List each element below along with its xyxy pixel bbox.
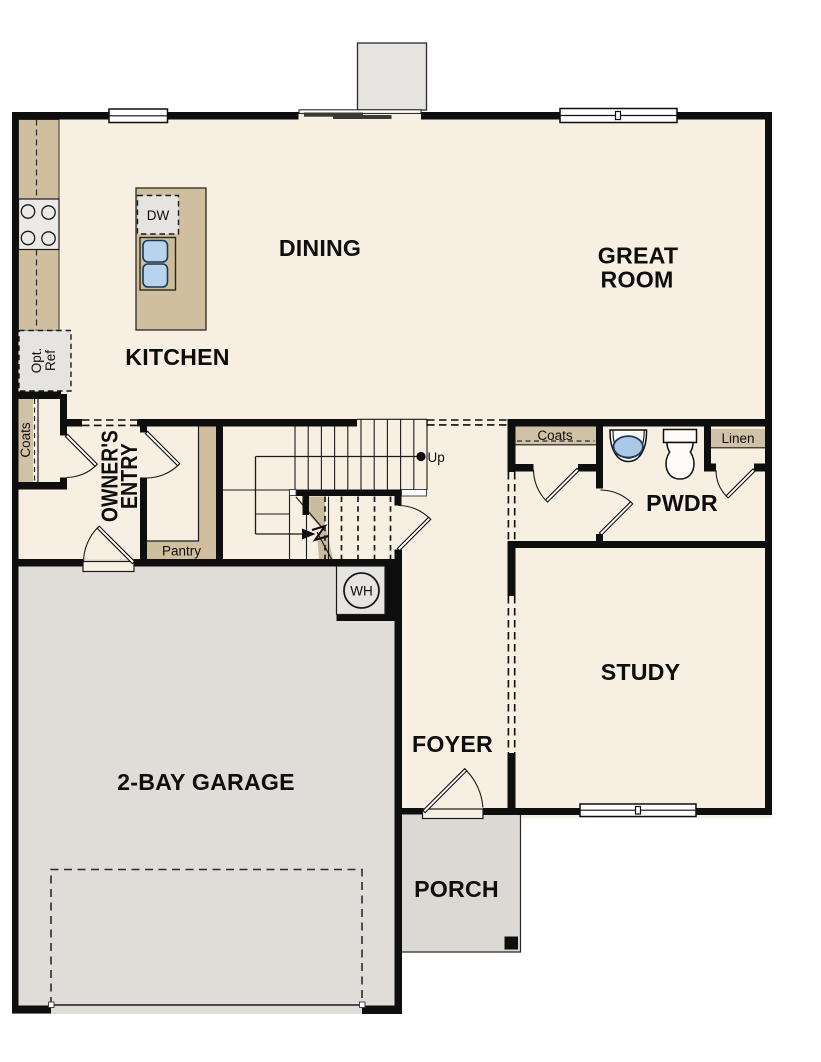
svg-text:Linen: Linen [721, 431, 754, 446]
svg-text:PORCH: PORCH [414, 876, 499, 902]
svg-text:Pantry: Pantry [162, 544, 201, 559]
svg-text:Opt.Ref: Opt.Ref [29, 348, 58, 374]
svg-text:Coats: Coats [18, 422, 33, 458]
svg-text:DW: DW [147, 208, 170, 223]
svg-text:DINING: DINING [279, 235, 361, 261]
svg-text:STUDY: STUDY [601, 659, 681, 685]
svg-text:Coats: Coats [537, 428, 573, 443]
svg-text:GREAT: GREAT [598, 243, 678, 269]
svg-text:KITCHEN: KITCHEN [125, 344, 229, 370]
svg-text:OWNER'SENTRY: OWNER'SENTRY [96, 430, 142, 522]
svg-text:Up: Up [428, 450, 445, 465]
svg-text:WH: WH [350, 584, 373, 599]
svg-text:2-BAY GARAGE: 2-BAY GARAGE [117, 769, 295, 795]
svg-text:ROOM: ROOM [601, 267, 674, 293]
svg-text:FOYER: FOYER [412, 731, 493, 757]
svg-text:PWDR: PWDR [646, 490, 718, 516]
